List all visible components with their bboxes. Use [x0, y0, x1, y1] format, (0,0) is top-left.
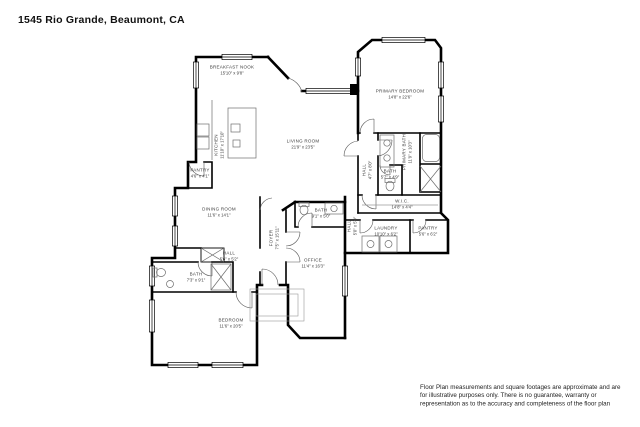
room-label: LAUNDRY10'10" x 6'2" — [374, 225, 397, 236]
room-label: BATH5'7" x 4'9" — [381, 168, 400, 179]
room-label: FOYER7'5" x 15'11" — [268, 227, 279, 250]
room-label: HALL4'7" x 8'0" — [361, 161, 372, 180]
room-label: PRIMARY BATH11'9" x 10'3" — [401, 134, 412, 170]
doors — [189, 78, 426, 308]
room-label: DINING ROOM11'6" x 14'1" — [202, 206, 236, 217]
room-label: LIVING ROOM21'9" x 23'5" — [287, 138, 320, 149]
floor-plan: BREAKFAST NOOK15'10" x 9'8"KITCHEN11'10"… — [0, 0, 640, 427]
room-label: BEDROOM11'6" x 20'5" — [218, 317, 243, 328]
room-label: PANTRY4'6" x 4'1" — [190, 167, 209, 178]
room-label: PANTRY5'6" x 6'2" — [418, 225, 437, 236]
room-label: HALL5'6" x 5'2" — [220, 250, 239, 261]
room-label: KITCHEN11'10" x 17'10" — [213, 131, 224, 159]
room-label: PRIMARY BEDROOM14'8" x 22'6" — [376, 88, 425, 99]
room-label: BREAKFAST NOOK15'10" x 9'8" — [210, 64, 254, 75]
room-label: W.I.C.14'8" x 4'4" — [392, 198, 413, 209]
room-label: BATH9'1" x 5'0" — [312, 207, 331, 218]
floor-plan-page: 1545 Rio Grande, Beaumont, CA — [0, 0, 640, 427]
room-label: OFFICE11'4" x 16'3" — [302, 257, 325, 268]
room-label: BATH7'3" x 9'1" — [187, 271, 206, 282]
room-label: HALL5'0" x 5'9" — [346, 217, 357, 236]
disclaimer: Floor Plan measurements and square foota… — [420, 383, 629, 408]
